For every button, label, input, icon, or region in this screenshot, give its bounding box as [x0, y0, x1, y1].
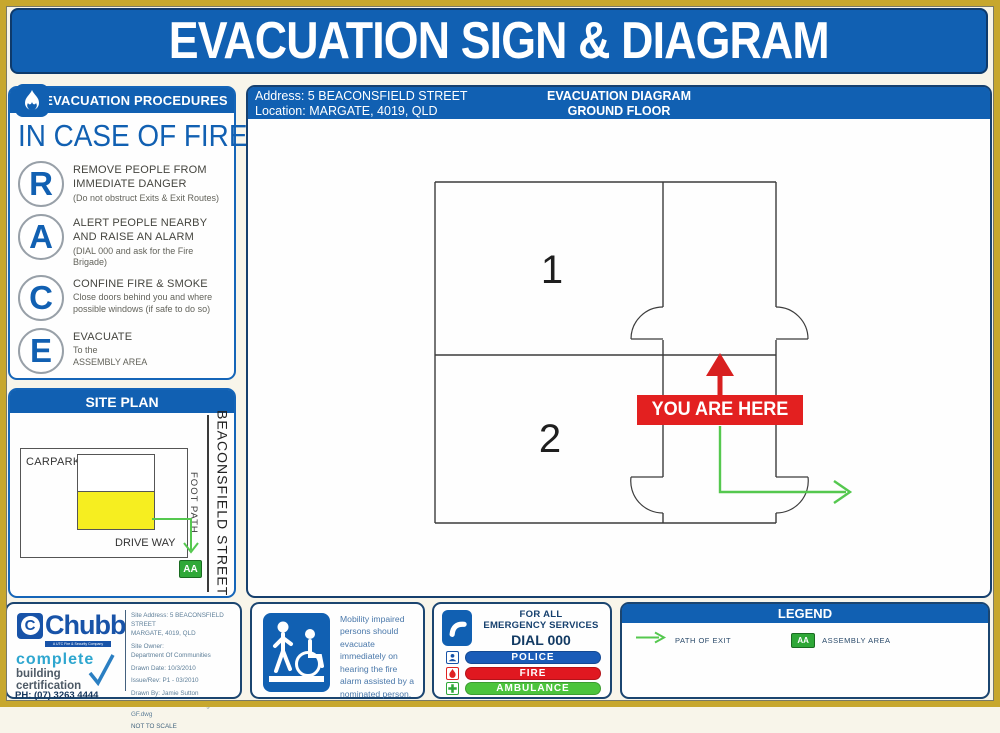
- procedures-header: EVACUATION PROCEDURES: [10, 88, 234, 113]
- footpath-strip: FOOT PATH: [188, 445, 199, 561]
- path-of-exit-label: PATH OF EXIT: [675, 636, 731, 645]
- detail-line: Site Address: 5 BEACONSFIELD STREET: [131, 612, 235, 629]
- step-evacuate-title: EVACUATE: [73, 330, 147, 344]
- tagline-building-certification: building certification: [16, 668, 81, 692]
- step-remove-title: REMOVE PEOPLE FROM IMMEDIATE DANGER: [73, 163, 219, 192]
- site-assembly-area-badge: AA: [179, 560, 202, 578]
- you-are-here-marker: YOU ARE HERE: [637, 395, 803, 425]
- phone-icon: [442, 610, 472, 646]
- building-highlight: [78, 491, 154, 529]
- race-step-alert: A ALERT PEOPLE NEARBY AND RAISE AN ALARM…: [10, 214, 234, 268]
- race-step-evacuate: E EVACUATE To the ASSEMBLY AREA: [10, 328, 234, 374]
- driveway-label: DRIVE WAY: [115, 537, 176, 549]
- not-to-scale-note: NOT TO SCALE: [131, 723, 235, 732]
- step-evacuate-note: To the ASSEMBLY AREA: [73, 345, 147, 368]
- chubb-c-icon: C: [17, 613, 43, 639]
- evacuation-diagram-panel: Address: 5 BEACONSFIELD STREET Location:…: [246, 85, 992, 598]
- exit-arrow-icon: [634, 631, 668, 649]
- street-label: BEACONSFIELD STREET: [215, 410, 231, 596]
- divider: [125, 610, 126, 691]
- detail-line: Issue/Rev: P1 - 03/2010: [131, 677, 235, 686]
- detail-line: MARGATE, 4019, QLD: [131, 630, 235, 639]
- step-alert-title: ALERT PEOPLE NEARBY AND RAISE AN ALARM: [73, 216, 226, 245]
- assembly-area-label: ASSEMBLY AREA: [822, 636, 890, 645]
- certifier-panel: C Chubb A UTC Fire & Security Company co…: [5, 602, 242, 699]
- location-line: Location: MARGATE, 4019, QLD: [255, 104, 468, 119]
- procedures-header-label: EVACUATION PROCEDURES: [44, 93, 228, 108]
- service-row-ambulance: AMBULANCE: [446, 682, 601, 695]
- legend-panel: LEGEND PATH OF EXIT AA ASSEMBLY AREA: [620, 602, 990, 699]
- chubb-logo: C Chubb: [17, 612, 125, 639]
- detail-line: Site Owner:: [131, 643, 235, 652]
- assembly-area-badge-icon: AA: [791, 633, 815, 648]
- diagram-floor: GROUND FLOOR: [547, 104, 691, 119]
- chubb-wordmark: Chubb: [45, 612, 125, 639]
- service-row-fire: FIRE: [446, 667, 601, 680]
- title-block-details: Site Address: 5 BEACONSFIELD STREET MARG…: [131, 612, 235, 733]
- emergency-services-label: EMERGENCY SERVICES: [476, 620, 606, 631]
- step-confine-title: CONFINE FIRE & SMOKE: [73, 277, 212, 291]
- legend-row: PATH OF EXIT AA ASSEMBLY AREA: [634, 631, 891, 649]
- ambulance-bar: AMBULANCE: [465, 682, 601, 695]
- phone-number: PH: (07) 3263 4444: [15, 690, 98, 701]
- detail-line: Drawn Date: 10/3/2010: [131, 665, 235, 674]
- race-step-remove: R REMOVE PEOPLE FROM IMMEDIATE DANGER (D…: [10, 161, 234, 207]
- race-letter-r: R: [18, 161, 64, 207]
- dial-000-label: DIAL 000: [476, 632, 606, 648]
- detail-line: Department Of Communities: [131, 652, 235, 661]
- page-title: EVACUATION SIGN & DIAGRAM: [169, 11, 829, 71]
- emergency-services-panel: FOR ALL EMERGENCY SERVICES DIAL 000 POLI…: [432, 602, 612, 699]
- carpark-label: CARPARK: [26, 456, 80, 468]
- site-building: [77, 454, 155, 530]
- for-all-label: FOR ALL: [476, 609, 606, 620]
- footpath-label: FOOT PATH: [188, 472, 199, 534]
- diagram-title: EVACUATION DIAGRAM: [547, 89, 691, 104]
- ambulance-icon: [446, 682, 459, 695]
- emergency-heading: FOR ALL EMERGENCY SERVICES DIAL 000: [476, 609, 606, 648]
- wheelchair-icon: [263, 613, 330, 692]
- address-line: Address: 5 BEACONSFIELD STREET: [255, 89, 468, 104]
- fire-bar: FIRE: [465, 667, 601, 680]
- step-remove-note: (Do not obstruct Exits & Exit Routes): [73, 193, 219, 204]
- police-bar: POLICE: [465, 651, 601, 664]
- tagline-complete: complete: [16, 651, 94, 669]
- diagram-header: Address: 5 BEACONSFIELD STREET Location:…: [248, 87, 990, 119]
- mobility-instructions: Mobility impaired persons should evacuat…: [340, 613, 417, 700]
- step-confine-note: Close doors behind you and where possibl…: [73, 292, 212, 315]
- in-case-of-fire-title: IN CASE OF FIRE: [10, 113, 234, 154]
- flame-icon: [15, 84, 49, 117]
- chubb-subbrand: A UTC Fire & Security Company: [45, 641, 111, 647]
- police-icon: [446, 651, 459, 664]
- race-letter-e: E: [18, 328, 64, 374]
- mobility-panel: Mobility impaired persons should evacuat…: [250, 602, 425, 699]
- street-strip: BEACONSFIELD STREET: [207, 415, 236, 592]
- checkmark-icon: [87, 652, 115, 691]
- race-letter-a: A: [18, 214, 64, 260]
- fire-icon: [446, 667, 459, 680]
- race-step-confine: C CONFINE FIRE & SMOKE Close doors behin…: [10, 275, 234, 321]
- detail-line: File: 5 Beaconsfield St Margate GF.dwg: [131, 702, 235, 719]
- site-plan-header: SITE PLAN: [10, 390, 234, 413]
- legend-header: LEGEND: [622, 604, 988, 623]
- service-row-police: POLICE: [446, 651, 601, 664]
- race-letter-c: C: [18, 275, 64, 321]
- emergency-service-list: POLICE FIRE AMBULANCE: [446, 651, 601, 698]
- evacuation-procedures-panel: EVACUATION PROCEDURES IN CASE OF FIRE R …: [8, 86, 236, 380]
- detail-line: Drawn By: Jamie Sutton: [131, 690, 235, 699]
- sign-title-bar: EVACUATION SIGN & DIAGRAM: [10, 8, 988, 74]
- step-alert-note: (DIAL 000 and ask for the Fire Brigade): [73, 246, 226, 269]
